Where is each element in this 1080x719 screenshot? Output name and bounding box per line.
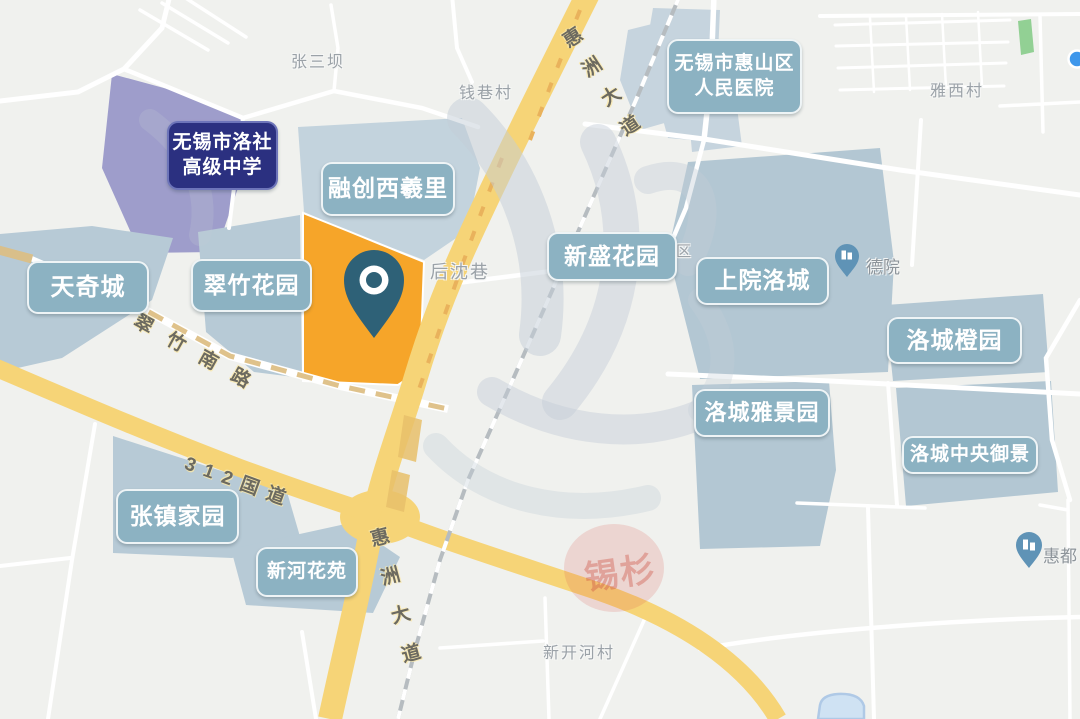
estate-label-tianqicheng[interactable]: 天奇城 [27,261,149,314]
hospital-label-line1: 无锡市惠山区 [674,52,794,77]
estate-label-luochengzhongyangyujing[interactable]: 洛城中央御景 [902,436,1038,474]
school-label[interactable]: 无锡市洛社 高级中学 [167,121,278,190]
poi-label-deyuan[interactable]: 德院 [866,253,900,278]
estate-label-xinhehuayuan[interactable]: 新河花苑 [256,547,358,597]
estate-label-cuizhuhuayuan[interactable]: 翠竹花园 [191,259,312,312]
poi-pin-huidu[interactable] [1016,532,1042,568]
school-label-line1: 无锡市洛社 [172,131,272,156]
map-canvas[interactable]: 天奇城 翠竹花园 融创西羲里 新盛花园 上院洛城 洛城橙园 洛城雅景园 洛城中央… [0,0,1080,719]
park-green-strip [1018,19,1034,55]
hospital-label[interactable]: 无锡市惠山区 人民医院 [667,39,802,114]
village-yaxicun: 雅西村 [930,77,984,101]
estate-label-zhangzhenjiayuan[interactable]: 张镇家园 [116,489,239,544]
estate-label-xinshenghuayuan[interactable]: 新盛花园 [547,232,677,281]
station-dot[interactable] [1069,51,1080,68]
pond [818,694,864,719]
estate-label-rongchuangxixili[interactable]: 融创西羲里 [321,162,455,216]
area-houshenxiang: 后沈巷 [430,258,490,284]
hospital-label-line2: 人民医院 [694,77,774,102]
poi-label-huidu[interactable]: 惠都 [1043,542,1077,567]
village-qianxiangcun: 钱巷村 [459,79,513,103]
estate-label-luochengchengyuan[interactable]: 洛城橙园 [887,317,1022,364]
school-label-line2: 高级中学 [182,156,262,181]
village-xinkaihecun: 新开河村 [543,639,615,663]
village-zhangsanba: 张三坝 [291,48,345,72]
estate-label-shangyuanluocheng[interactable]: 上院洛城 [696,257,829,305]
estate-label-luochengyajingyuan[interactable]: 洛城雅景园 [694,389,830,437]
